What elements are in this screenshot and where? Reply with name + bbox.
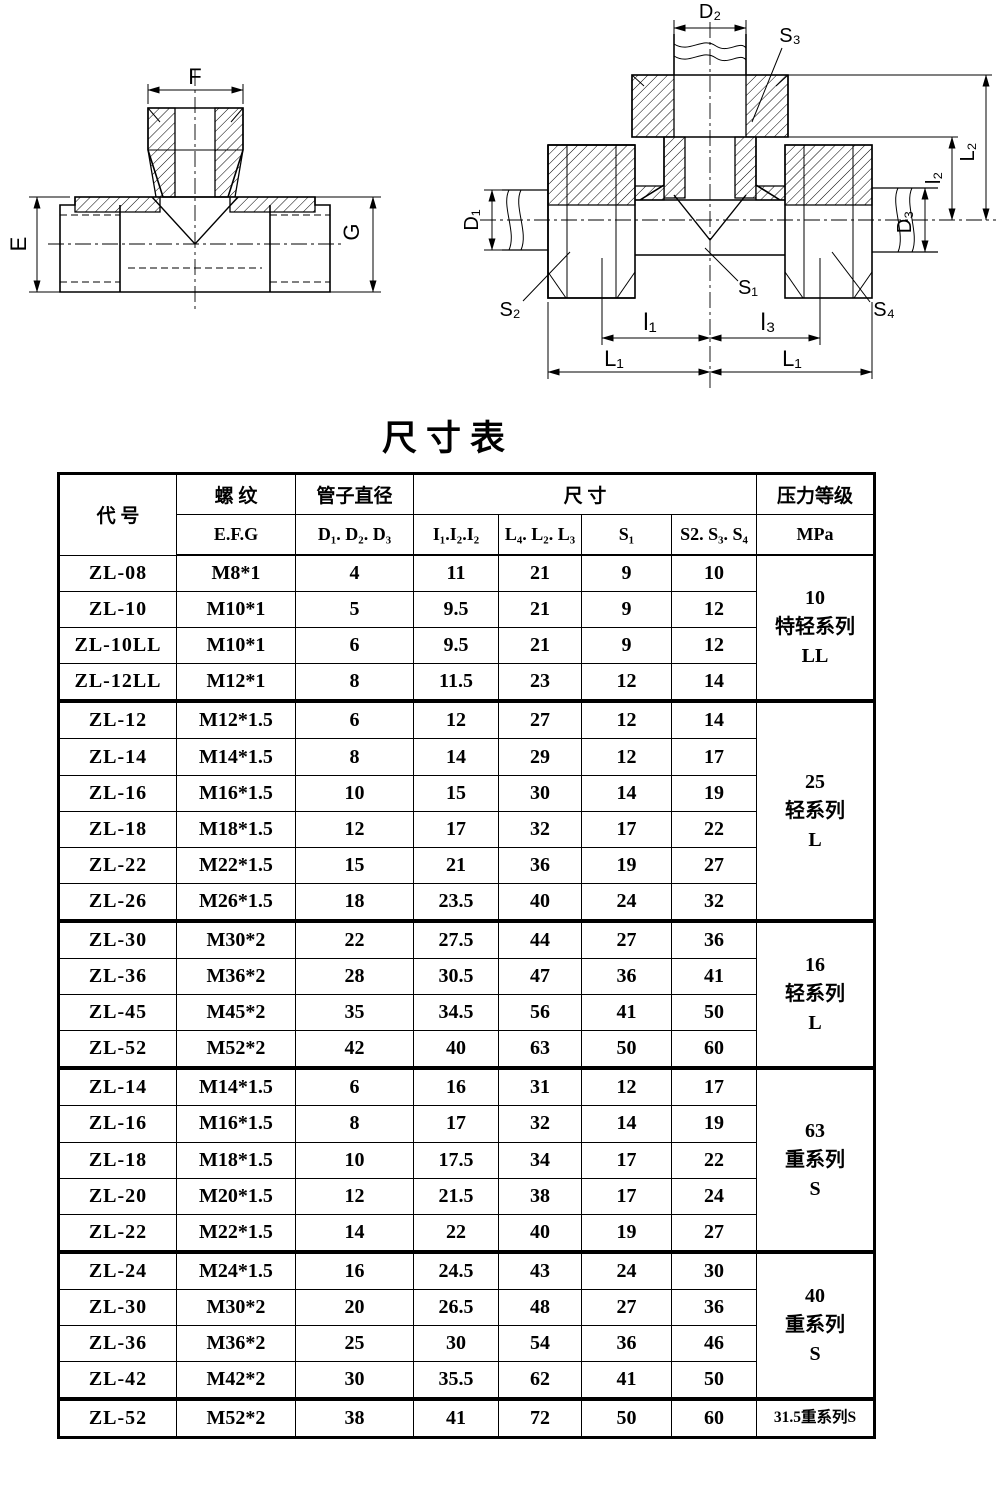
- cell-thread: M12*1.5: [177, 701, 296, 739]
- cell-l: 40: [499, 883, 582, 921]
- cell-code: ZL-10LL: [59, 628, 177, 664]
- table-row: ZL-26M26*1.51823.5402432: [59, 883, 875, 921]
- cell-s1: 12: [582, 701, 672, 739]
- cell-code: ZL-42: [59, 1362, 177, 1400]
- cell-i: 17: [414, 811, 499, 847]
- table-row: ZL-12LLM12*1811.5231214: [59, 664, 875, 702]
- cell-dia: 8: [296, 739, 414, 775]
- cell-s234: 12: [672, 592, 757, 628]
- cell-s1: 17: [582, 811, 672, 847]
- header-dim-I: I₁.I₂.I₂: [414, 515, 499, 556]
- cell-s1: 19: [582, 847, 672, 883]
- cell-s1: 41: [582, 1362, 672, 1400]
- cell-code: ZL-52: [59, 1031, 177, 1069]
- cell-l: 27: [499, 701, 582, 739]
- cell-thread: M26*1.5: [177, 883, 296, 921]
- header-pipe-dia-sub: D₁. D₂. D₃: [296, 515, 414, 556]
- cell-dia: 42: [296, 1031, 414, 1069]
- cell-i: 23.5: [414, 883, 499, 921]
- cell-s1: 9: [582, 592, 672, 628]
- page-title: 尺寸表: [382, 410, 514, 461]
- cell-s1: 19: [582, 1214, 672, 1252]
- cell-l: 21: [499, 628, 582, 664]
- cell-code: ZL-52: [59, 1399, 177, 1438]
- table-row: ZL-42M42*23035.5624150: [59, 1362, 875, 1400]
- cell-thread: M10*1: [177, 592, 296, 628]
- cell-l: 54: [499, 1325, 582, 1361]
- cell-i: 9.5: [414, 592, 499, 628]
- cell-s234: 30: [672, 1252, 757, 1290]
- cell-code: ZL-30: [59, 1289, 177, 1325]
- cell-dia: 10: [296, 1142, 414, 1178]
- cell-s234: 27: [672, 847, 757, 883]
- cell-s234: 17: [672, 739, 757, 775]
- cell-thread: M20*1.5: [177, 1178, 296, 1214]
- cell-code: ZL-30: [59, 921, 177, 959]
- cell-s234: 36: [672, 1289, 757, 1325]
- cell-i: 16: [414, 1068, 499, 1106]
- cell-code: ZL-24: [59, 1252, 177, 1290]
- table-row: ZL-10LLM10*169.521912: [59, 628, 875, 664]
- cell-l: 23: [499, 664, 582, 702]
- cell-l: 56: [499, 995, 582, 1031]
- dim-label-L1-left: L₁: [604, 346, 624, 371]
- cell-code: ZL-20: [59, 1178, 177, 1214]
- cell-dia: 15: [296, 847, 414, 883]
- cell-code: ZL-14: [59, 739, 177, 775]
- cell-thread: M52*2: [177, 1399, 296, 1438]
- table-row: ZL-24M24*1.51624.543243040 重系列 S: [59, 1252, 875, 1290]
- cell-s234: 17: [672, 1068, 757, 1106]
- table-row: ZL-14M14*1.561631121763 重系列 S: [59, 1068, 875, 1106]
- cell-dia: 8: [296, 664, 414, 702]
- header-pipe-dia: 管子直径: [296, 474, 414, 515]
- cell-thread: M16*1.5: [177, 1106, 296, 1142]
- cell-s1: 12: [582, 1068, 672, 1106]
- cell-code: ZL-18: [59, 1142, 177, 1178]
- cell-code: ZL-36: [59, 959, 177, 995]
- dim-label-D1: D₁: [461, 209, 483, 230]
- table-row: ZL-52M52*2384172506031.5重系列S: [59, 1399, 875, 1438]
- cell-i: 11: [414, 555, 499, 592]
- catalog-page: F E G: [0, 0, 1000, 1499]
- cell-i: 11.5: [414, 664, 499, 702]
- table-row: ZL-45M45*23534.5564150: [59, 995, 875, 1031]
- cell-s1: 50: [582, 1031, 672, 1069]
- cell-s234: 19: [672, 1106, 757, 1142]
- table-row: ZL-36M36*22530543646: [59, 1325, 875, 1361]
- cell-thread: M14*1.5: [177, 1068, 296, 1106]
- cell-l: 34: [499, 1142, 582, 1178]
- cell-s1: 36: [582, 1325, 672, 1361]
- cell-s234: 14: [672, 664, 757, 702]
- cell-s1: 9: [582, 555, 672, 592]
- cell-dia: 18: [296, 883, 414, 921]
- cell-dia: 8: [296, 1106, 414, 1142]
- dim-label-S4: S₄: [873, 299, 895, 321]
- table-row: ZL-22M22*1.51521361927: [59, 847, 875, 883]
- cell-i: 17: [414, 1106, 499, 1142]
- cell-l: 30: [499, 775, 582, 811]
- cell-dia: 28: [296, 959, 414, 995]
- dim-label-S3: S₃: [779, 25, 800, 47]
- cell-i: 21: [414, 847, 499, 883]
- cell-s234: 60: [672, 1399, 757, 1438]
- cell-l: 43: [499, 1252, 582, 1290]
- dim-label-E: E: [10, 237, 31, 252]
- cell-dia: 25: [296, 1325, 414, 1361]
- header-dim-L: L₄. L₂. L₃: [499, 515, 582, 556]
- header-dim-S1: S₁: [582, 515, 672, 556]
- cell-thread: M24*1.5: [177, 1252, 296, 1290]
- cell-l: 72: [499, 1399, 582, 1438]
- cell-s234: 14: [672, 701, 757, 739]
- cell-dia: 6: [296, 1068, 414, 1106]
- cell-thread: M8*1: [177, 555, 296, 592]
- dim-label-S1: S₁: [738, 277, 758, 299]
- cell-s234: 22: [672, 1142, 757, 1178]
- cell-l: 29: [499, 739, 582, 775]
- header-thread: 螺 纹: [177, 474, 296, 515]
- cell-thread: M36*2: [177, 1325, 296, 1361]
- cell-code: ZL-45: [59, 995, 177, 1031]
- cell-i: 24.5: [414, 1252, 499, 1290]
- pressure-group-cell: 40 重系列 S: [757, 1252, 875, 1399]
- table-row: ZL-22M22*1.51422401927: [59, 1214, 875, 1252]
- cell-code: ZL-18: [59, 811, 177, 847]
- cell-s234: 50: [672, 995, 757, 1031]
- cell-l: 47: [499, 959, 582, 995]
- dim-label-D3: D₃: [894, 211, 916, 234]
- cell-dia: 20: [296, 1289, 414, 1325]
- cell-i: 17.5: [414, 1142, 499, 1178]
- cell-code: ZL-10: [59, 592, 177, 628]
- table-row: ZL-30M30*22227.544273616 轻系列 L: [59, 921, 875, 959]
- dim-label-G: G: [339, 223, 364, 240]
- cell-dia: 12: [296, 1178, 414, 1214]
- header-dims: 尺 寸: [414, 474, 757, 515]
- header-row-sub: E.F.G D₁. D₂. D₃ I₁.I₂.I₂ L₄. L₂. L₃ S₁ …: [59, 515, 875, 556]
- cell-thread: M10*1: [177, 628, 296, 664]
- header-pressure-unit: MPa: [757, 515, 875, 556]
- section-view-drawing: D₂ S₃ L₂ l₂ D₁ D₃ S₂ S₁ S₄ l₁ l₃ L₁ L₁: [440, 0, 1000, 400]
- header-row-main: 代 号 螺 纹 管子直径 尺 寸 压力等级: [59, 474, 875, 515]
- cell-s1: 12: [582, 739, 672, 775]
- cell-thread: M12*1: [177, 664, 296, 702]
- dim-label-l1: l₁: [643, 309, 656, 336]
- cell-i: 30: [414, 1325, 499, 1361]
- cell-s234: 22: [672, 811, 757, 847]
- cell-code: ZL-16: [59, 775, 177, 811]
- cell-s234: 60: [672, 1031, 757, 1069]
- cell-code: ZL-36: [59, 1325, 177, 1361]
- cell-i: 41: [414, 1399, 499, 1438]
- cell-dia: 22: [296, 921, 414, 959]
- cell-l: 32: [499, 1106, 582, 1142]
- pressure-group-cell: 10 特轻系列 LL: [757, 555, 875, 701]
- cell-dia: 16: [296, 1252, 414, 1290]
- cell-code: ZL-26: [59, 883, 177, 921]
- cell-s234: 27: [672, 1214, 757, 1252]
- cell-code: ZL-12: [59, 701, 177, 739]
- cell-thread: M30*2: [177, 921, 296, 959]
- cell-dia: 6: [296, 701, 414, 739]
- cell-dia: 30: [296, 1362, 414, 1400]
- cell-s1: 41: [582, 995, 672, 1031]
- cell-i: 22: [414, 1214, 499, 1252]
- table-row: ZL-30M30*22026.5482736: [59, 1289, 875, 1325]
- cell-s234: 12: [672, 628, 757, 664]
- cell-dia: 35: [296, 995, 414, 1031]
- cell-i: 12: [414, 701, 499, 739]
- cell-i: 27.5: [414, 921, 499, 959]
- cell-s1: 12: [582, 664, 672, 702]
- pressure-group-cell: 63 重系列 S: [757, 1068, 875, 1251]
- cell-s1: 9: [582, 628, 672, 664]
- cell-i: 14: [414, 739, 499, 775]
- cell-l: 62: [499, 1362, 582, 1400]
- cell-s1: 14: [582, 775, 672, 811]
- dim-label-l3: l₃: [760, 309, 775, 336]
- cell-thread: M18*1.5: [177, 811, 296, 847]
- dim-label-L1-right: L₁: [782, 346, 802, 371]
- table-row: ZL-10M10*159.521912: [59, 592, 875, 628]
- front-view-drawing: F E G: [10, 50, 420, 370]
- table-row: ZL-20M20*1.51221.5381724: [59, 1178, 875, 1214]
- cell-l: 40: [499, 1214, 582, 1252]
- cell-i: 40: [414, 1031, 499, 1069]
- cell-s1: 14: [582, 1106, 672, 1142]
- cell-i: 34.5: [414, 995, 499, 1031]
- cell-s234: 19: [672, 775, 757, 811]
- table-row: ZL-12M12*1.561227121425 轻系列 L: [59, 701, 875, 739]
- dimension-table: 代 号 螺 纹 管子直径 尺 寸 压力等级 E.F.G D₁. D₂. D₃ I…: [57, 472, 876, 1439]
- dim-label-l2: l₂: [923, 172, 945, 184]
- cell-s1: 17: [582, 1142, 672, 1178]
- cell-thread: M42*2: [177, 1362, 296, 1400]
- cell-dia: 4: [296, 555, 414, 592]
- cell-s234: 10: [672, 555, 757, 592]
- cell-s1: 50: [582, 1399, 672, 1438]
- cell-l: 48: [499, 1289, 582, 1325]
- cell-thread: M22*1.5: [177, 847, 296, 883]
- cell-thread: M36*2: [177, 959, 296, 995]
- cell-code: ZL-22: [59, 847, 177, 883]
- cell-s1: 17: [582, 1178, 672, 1214]
- cell-s234: 41: [672, 959, 757, 995]
- cell-l: 31: [499, 1068, 582, 1106]
- cell-s1: 27: [582, 1289, 672, 1325]
- cell-dia: 14: [296, 1214, 414, 1252]
- cell-i: 21.5: [414, 1178, 499, 1214]
- table-row: ZL-18M18*1.51217321722: [59, 811, 875, 847]
- cell-code: ZL-16: [59, 1106, 177, 1142]
- cell-l: 38: [499, 1178, 582, 1214]
- cell-s1: 36: [582, 959, 672, 995]
- cell-s1: 24: [582, 1252, 672, 1290]
- dim-label-F: F: [188, 64, 201, 89]
- cell-thread: M14*1.5: [177, 739, 296, 775]
- cell-thread: M16*1.5: [177, 775, 296, 811]
- table-row: ZL-14M14*1.5814291217: [59, 739, 875, 775]
- cell-l: 32: [499, 811, 582, 847]
- cell-s234: 36: [672, 921, 757, 959]
- cell-code: ZL-12LL: [59, 664, 177, 702]
- cell-dia: 6: [296, 628, 414, 664]
- pressure-group-cell: 31.5重系列S: [757, 1399, 875, 1438]
- dim-label-L2: L₂: [957, 143, 979, 162]
- cell-s234: 46: [672, 1325, 757, 1361]
- cell-l: 63: [499, 1031, 582, 1069]
- table-row: ZL-16M16*1.5817321419: [59, 1106, 875, 1142]
- table-row: ZL-36M36*22830.5473641: [59, 959, 875, 995]
- table-row: ZL-08M8*14112191010 特轻系列 LL: [59, 555, 875, 592]
- cell-dia: 5: [296, 592, 414, 628]
- cell-l: 21: [499, 592, 582, 628]
- dim-label-S2: S₂: [499, 299, 520, 321]
- cell-dia: 12: [296, 811, 414, 847]
- cell-dia: 10: [296, 775, 414, 811]
- cell-l: 44: [499, 921, 582, 959]
- cell-l: 21: [499, 555, 582, 592]
- cell-thread: M52*2: [177, 1031, 296, 1069]
- header-code: 代 号: [59, 474, 177, 556]
- cell-s234: 50: [672, 1362, 757, 1400]
- cell-s1: 24: [582, 883, 672, 921]
- cell-dia: 38: [296, 1399, 414, 1438]
- header-thread-sub: E.F.G: [177, 515, 296, 556]
- cell-i: 26.5: [414, 1289, 499, 1325]
- cell-l: 36: [499, 847, 582, 883]
- pressure-group-cell: 16 轻系列 L: [757, 921, 875, 1068]
- dim-label-D2: D₂: [699, 1, 721, 23]
- cell-i: 9.5: [414, 628, 499, 664]
- cell-i: 15: [414, 775, 499, 811]
- table-row: ZL-18M18*1.51017.5341722: [59, 1142, 875, 1178]
- table-row: ZL-16M16*1.51015301419: [59, 775, 875, 811]
- cell-code: ZL-14: [59, 1068, 177, 1106]
- cell-code: ZL-08: [59, 555, 177, 592]
- table-row: ZL-52M52*24240635060: [59, 1031, 875, 1069]
- pressure-group-cell: 25 轻系列 L: [757, 701, 875, 921]
- cell-s234: 32: [672, 883, 757, 921]
- header-pressure: 压力等级: [757, 474, 875, 515]
- cell-thread: M22*1.5: [177, 1214, 296, 1252]
- cell-code: ZL-22: [59, 1214, 177, 1252]
- header-dim-S234: S2. S₃. S₄: [672, 515, 757, 556]
- cell-thread: M30*2: [177, 1289, 296, 1325]
- table-body: ZL-08M8*14112191010 特轻系列 LLZL-10M10*159.…: [59, 555, 875, 1438]
- cell-thread: M45*2: [177, 995, 296, 1031]
- cell-i: 30.5: [414, 959, 499, 995]
- cell-s234: 24: [672, 1178, 757, 1214]
- cell-thread: M18*1.5: [177, 1142, 296, 1178]
- cell-i: 35.5: [414, 1362, 499, 1400]
- cell-s1: 27: [582, 921, 672, 959]
